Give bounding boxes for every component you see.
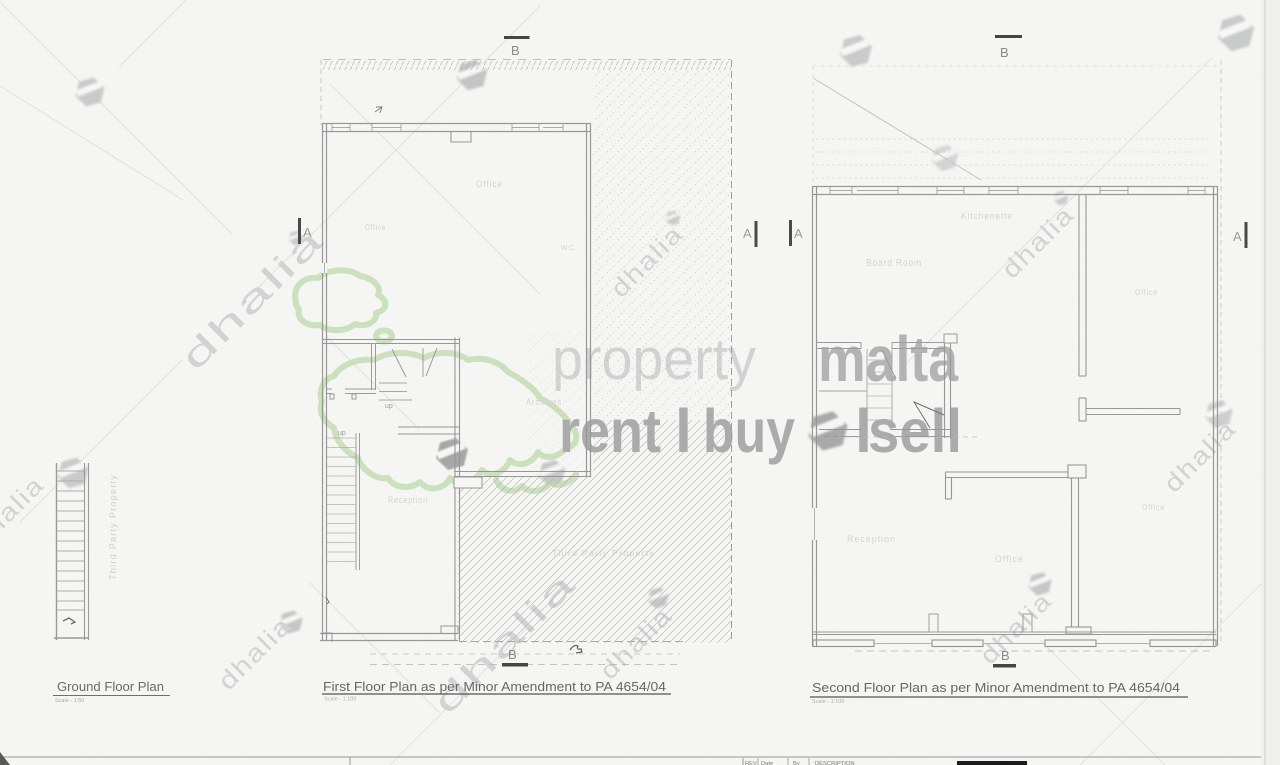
svg-text:Board Room: Board Room xyxy=(866,258,922,269)
svg-text:A: A xyxy=(794,226,803,241)
svg-text:By: By xyxy=(793,761,800,765)
svg-text:Third Party Property: Third Party Property xyxy=(108,474,119,580)
svg-text:DESCRIPTION: DESCRIPTION xyxy=(815,761,855,765)
svg-text:REV: REV xyxy=(745,761,757,765)
svg-text:A: A xyxy=(743,226,752,241)
svg-text:Reception: Reception xyxy=(847,534,896,544)
svg-text:Office: Office xyxy=(1135,288,1158,297)
svg-text:up: up xyxy=(338,430,346,437)
svg-text:Reception: Reception xyxy=(388,495,428,505)
svg-text:Office: Office xyxy=(476,179,503,189)
svg-text:Ground Floor Plan: Ground Floor Plan xyxy=(57,680,164,694)
svg-text:B: B xyxy=(1000,45,1009,60)
svg-text:Office: Office xyxy=(1142,503,1165,512)
svg-text:First Floor Plan as per Minor: First Floor Plan as per Minor Amendment … xyxy=(323,680,666,694)
svg-text:up: up xyxy=(385,403,393,410)
svg-text:sell: sell xyxy=(868,397,962,465)
svg-text:B: B xyxy=(511,43,520,58)
svg-text:B: B xyxy=(508,647,517,662)
svg-text:Office: Office xyxy=(365,223,386,232)
svg-text:Date: Date xyxy=(761,761,773,765)
svg-text:Second Floor Plan as per Minor: Second Floor Plan as per Minor Amendment… xyxy=(812,681,1180,695)
svg-text:Archives: Archives xyxy=(526,397,562,407)
svg-text:Third Party Property: Third Party Property xyxy=(552,548,655,558)
svg-text:Scale - 1:50: Scale - 1:50 xyxy=(55,698,84,704)
svg-text:B: B xyxy=(1001,648,1010,663)
svg-text:Office: Office xyxy=(995,554,1024,564)
svg-text:A: A xyxy=(303,225,312,240)
svg-text:Kitchenette: Kitchenette xyxy=(961,211,1013,221)
svg-text:Scale - 1:100: Scale - 1:100 xyxy=(812,699,844,705)
svg-text:A: A xyxy=(1233,229,1242,244)
svg-text:W.C.: W.C. xyxy=(561,245,576,252)
svg-text:Scale - 1:100: Scale - 1:100 xyxy=(324,697,356,703)
